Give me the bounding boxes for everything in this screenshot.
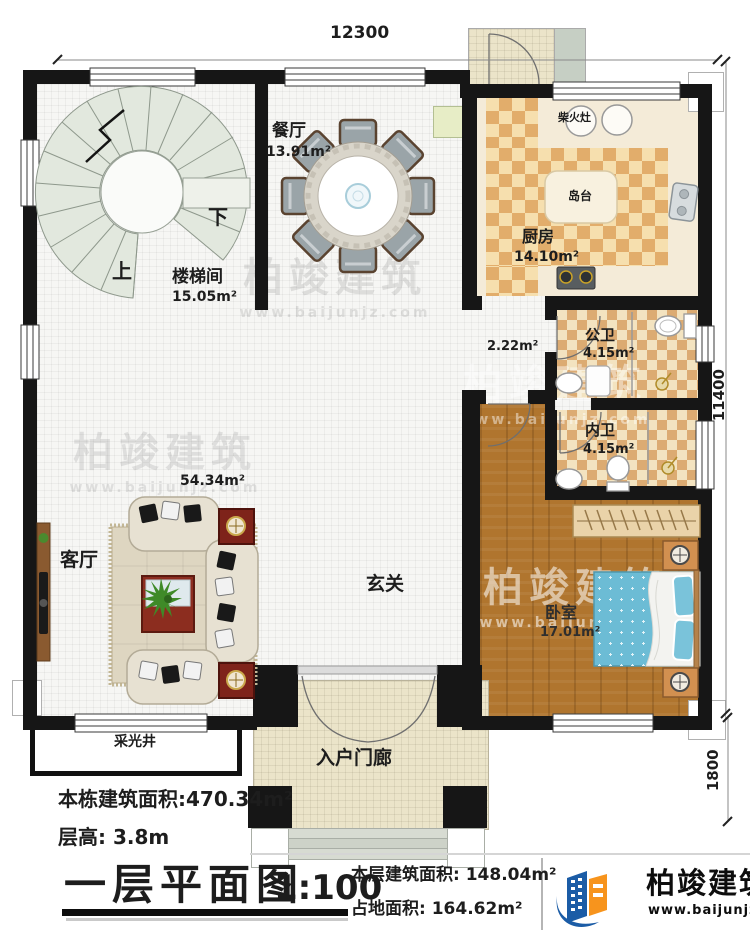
room-area-stairwell: 15.05m²: [172, 290, 237, 305]
room-area-bedroom: 17.01m²: [540, 626, 600, 640]
brand-name: 柏竣建筑: [646, 868, 750, 900]
dimension-porch: 1800: [705, 745, 722, 795]
bed: [594, 570, 700, 668]
balcony-door: [489, 34, 539, 84]
room-area-dining: 13.91m²: [266, 145, 331, 160]
bedroom-furniture: [573, 505, 700, 697]
tv-cabinet: [37, 523, 50, 661]
room-label-living: 客厅: [60, 550, 98, 571]
bath-sink: [556, 469, 582, 489]
room-area-public-bath: 4.15m²: [583, 347, 634, 361]
plant: [39, 533, 49, 543]
room-area-kitchen: 14.10m²: [514, 250, 579, 265]
wood-stove-burner: [602, 105, 632, 135]
floor-area-text: 本层建筑面积: 148.04m²: [351, 866, 556, 885]
footer-rule: [250, 853, 750, 855]
brand-logo-icon: [557, 871, 607, 927]
floor-plan-page: 柏竣建筑 www.baijunjz.com 柏竣建筑 www.baijunjz.…: [0, 0, 750, 936]
room-label-porch: 入户门廊: [316, 748, 392, 769]
coffee-table: [141, 576, 194, 632]
dimension-right: 11400: [711, 371, 728, 421]
room-label-inner-bath: 内卫: [585, 422, 615, 439]
building-area-text: 本栋建筑面积:470.34m²: [58, 788, 293, 810]
light-well-label: 采光井: [30, 735, 240, 750]
shower-head: [656, 373, 671, 390]
entrance-double-door: [298, 666, 437, 742]
window: [696, 326, 714, 362]
pillow: [673, 619, 696, 660]
window: [90, 68, 195, 86]
nightstand: [663, 541, 698, 570]
room-label-dining: 餐厅: [272, 122, 306, 141]
bath-sink: [556, 373, 582, 393]
title-underline: [62, 909, 348, 916]
window: [285, 68, 425, 86]
dining-table-set: [282, 120, 434, 272]
dimension-top: 12300: [330, 24, 389, 43]
window: [553, 82, 680, 100]
stair-down-label: 下: [208, 206, 228, 228]
floor-height-text: 层高: 3.8m: [58, 826, 169, 848]
island-label: 岛台: [568, 190, 592, 203]
sheet-title: 一层平面图: [64, 862, 304, 908]
window: [696, 421, 714, 489]
footprint-area-text: 占地面积: 164.62m²: [351, 900, 522, 919]
shower-head: [662, 457, 677, 474]
corridor-area: 2.22m²: [487, 340, 538, 354]
window: [21, 325, 39, 379]
room-label-bedroom: 卧室: [545, 604, 577, 622]
room-area-inner-bath: 4.15m²: [583, 443, 634, 457]
side-table: [219, 663, 254, 698]
room-label-kitchen: 厨房: [522, 228, 554, 246]
nightstand: [663, 668, 698, 697]
window: [553, 714, 653, 732]
pillow: [673, 575, 696, 616]
room-label-foyer: 玄关: [366, 574, 404, 595]
kitchen-range: [557, 267, 595, 289]
toilet: [607, 456, 629, 491]
stair-landing: [183, 178, 250, 208]
wardrobe: [573, 505, 700, 537]
living-furniture: [37, 497, 258, 704]
washer: [586, 366, 610, 396]
title-underline-shadow: [66, 918, 348, 921]
toilet: [655, 314, 696, 338]
room-label-public-bath: 公卫: [585, 327, 615, 344]
wood-stove-label: 柴火灶: [558, 112, 591, 124]
room-area-living: 54.34m²: [180, 474, 245, 489]
bedroom-door: [488, 404, 530, 446]
brand-website: www.baijunjz.com: [648, 904, 750, 918]
stair-up-label: 上: [112, 260, 132, 282]
kitchen-sink: [669, 183, 699, 222]
window: [75, 714, 207, 732]
room-label-stairwell: 楼梯间: [172, 268, 223, 287]
side-table: [219, 509, 254, 544]
